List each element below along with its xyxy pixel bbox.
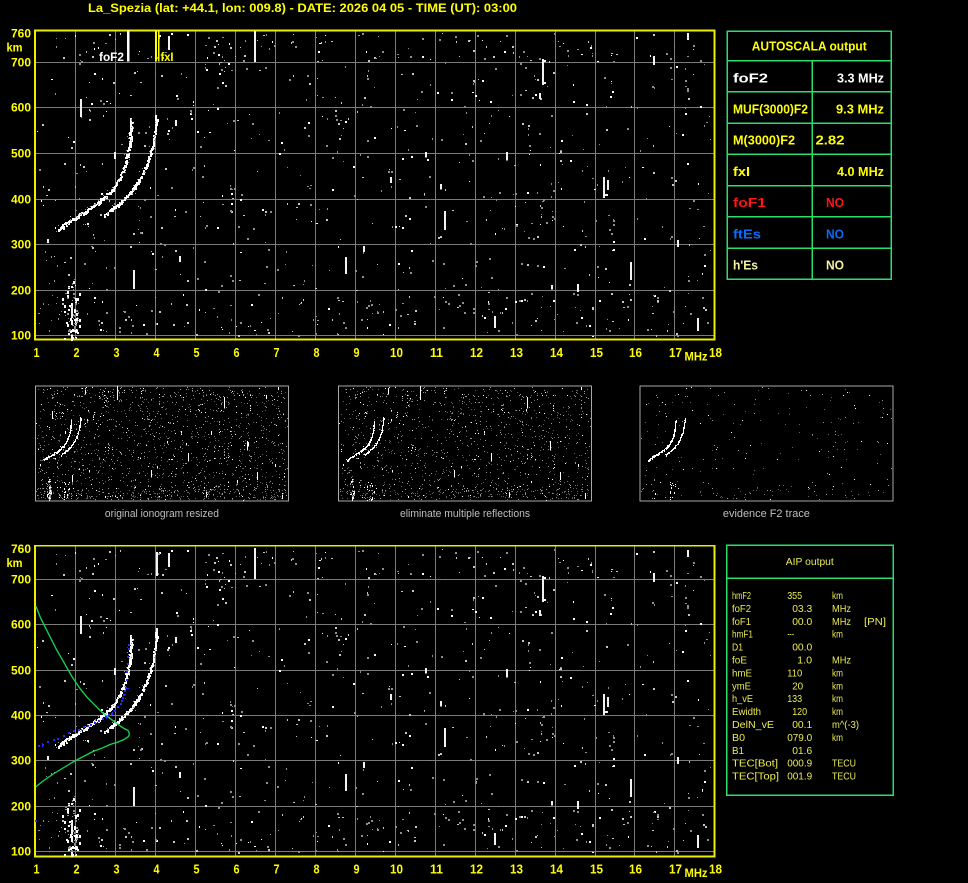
svg-text:TECU: TECU (832, 758, 856, 770)
svg-text:13: 13 (510, 345, 523, 360)
svg-text:original ionogram resized: original ionogram resized (105, 508, 219, 520)
svg-text:TEC[Bot]: TEC[Bot] (732, 758, 778, 770)
svg-text:4: 4 (154, 862, 161, 877)
svg-text:12: 12 (470, 345, 483, 360)
svg-text:100: 100 (11, 329, 31, 343)
svg-text:8: 8 (314, 345, 320, 360)
svg-text:km: km (832, 667, 843, 679)
svg-text:700: 700 (11, 56, 31, 70)
svg-text:foF1: foF1 (733, 195, 766, 210)
svg-text:5: 5 (194, 345, 200, 360)
svg-text:6: 6 (234, 862, 240, 877)
svg-text:km: km (832, 706, 843, 718)
svg-text:15: 15 (590, 862, 603, 877)
svg-text:MUF(3000)F2: MUF(3000)F2 (733, 102, 808, 117)
svg-text:14: 14 (550, 862, 564, 877)
svg-text:foF2: foF2 (732, 603, 751, 615)
svg-text:TEC[Top]: TEC[Top] (732, 771, 779, 783)
svg-text:400: 400 (11, 709, 31, 723)
svg-text:h'Es: h'Es (733, 258, 758, 273)
svg-text:100: 100 (11, 845, 31, 859)
svg-text:18: 18 (709, 862, 722, 877)
svg-text:MHz: MHz (832, 655, 851, 667)
svg-text:D1: D1 (732, 642, 743, 654)
svg-text:km: km (832, 693, 843, 705)
svg-text:700: 700 (11, 573, 31, 587)
svg-text:600: 600 (11, 101, 31, 115)
svg-text:3: 3 (114, 345, 120, 360)
svg-text:km: km (7, 41, 23, 55)
svg-text:6: 6 (234, 345, 240, 360)
svg-text:000.9: 000.9 (787, 758, 812, 770)
svg-text:hmF2: hmF2 (732, 590, 751, 602)
svg-text:MHz: MHz (685, 350, 708, 364)
svg-text:00.1: 00.1 (792, 719, 812, 731)
svg-text:B0: B0 (732, 732, 745, 744)
svg-text:B1: B1 (732, 745, 744, 757)
svg-text:NO: NO (826, 226, 844, 241)
svg-text:km: km (832, 590, 843, 602)
svg-text:8: 8 (314, 862, 320, 877)
svg-text:9: 9 (354, 862, 360, 877)
svg-text:foE: foE (732, 655, 747, 667)
svg-text:1: 1 (34, 345, 40, 360)
svg-text:20: 20 (792, 680, 803, 692)
svg-text:NO: NO (826, 258, 844, 273)
svg-text:600: 600 (11, 618, 31, 632)
svg-text:079.0: 079.0 (787, 732, 812, 744)
svg-text:9: 9 (354, 345, 360, 360)
svg-text:foF2: foF2 (733, 70, 768, 85)
svg-text:11: 11 (430, 862, 443, 877)
svg-text:300: 300 (11, 754, 31, 768)
svg-text:15: 15 (590, 345, 603, 360)
svg-text:h_vE: h_vE (732, 693, 753, 705)
svg-text:18: 18 (709, 345, 722, 360)
svg-text:760: 760 (11, 27, 31, 41)
svg-text:110: 110 (787, 667, 802, 679)
svg-text:Ewidth: Ewidth (732, 706, 761, 718)
svg-text:500: 500 (11, 664, 31, 678)
svg-text:11: 11 (430, 345, 443, 360)
svg-text:14: 14 (550, 345, 564, 360)
svg-text:3: 3 (114, 862, 120, 877)
svg-text:13: 13 (510, 862, 523, 877)
svg-text:12: 12 (470, 862, 483, 877)
svg-text:120: 120 (792, 706, 807, 718)
svg-text:2: 2 (74, 345, 80, 360)
svg-text:evidence F2 trace: evidence F2 trace (723, 508, 810, 520)
svg-text:MHz: MHz (685, 866, 708, 880)
svg-text:17: 17 (669, 345, 682, 360)
svg-text:AIP output: AIP output (786, 556, 834, 568)
svg-text:300: 300 (11, 238, 31, 252)
svg-text:km: km (832, 629, 843, 641)
svg-text:200: 200 (11, 284, 31, 298)
svg-text:MHz: MHz (832, 603, 851, 615)
svg-text:10: 10 (390, 345, 403, 360)
svg-text:1: 1 (34, 862, 40, 877)
svg-text:2.82: 2.82 (816, 133, 845, 148)
svg-text:km: km (832, 732, 843, 744)
svg-text:133: 133 (787, 693, 802, 705)
svg-text:NO: NO (826, 195, 844, 210)
svg-text:10: 10 (390, 862, 403, 877)
svg-text:MHz: MHz (832, 616, 851, 628)
svg-text:foF1: foF1 (732, 616, 751, 628)
svg-text:TECU: TECU (832, 771, 856, 783)
svg-text:17: 17 (669, 862, 682, 877)
svg-text:760: 760 (11, 542, 31, 556)
svg-text:200: 200 (11, 800, 31, 814)
svg-text:500: 500 (11, 147, 31, 161)
svg-text:km: km (832, 680, 843, 692)
svg-text:ymE: ymE (732, 680, 751, 692)
svg-text:9.3 MHz: 9.3 MHz (836, 102, 884, 117)
svg-text:4: 4 (154, 345, 161, 360)
svg-text:7: 7 (274, 862, 280, 877)
svg-text:fxI: fxI (161, 50, 174, 64)
svg-text:AUTOSCALA output: AUTOSCALA output (752, 39, 868, 54)
svg-text:5: 5 (194, 862, 200, 877)
svg-text:400: 400 (11, 193, 31, 207)
svg-text:4.0 MHz: 4.0 MHz (837, 164, 884, 179)
svg-text:La_Spezia (lat: +44.1, lon: 00: La_Spezia (lat: +44.1, lon: 009.8) - DAT… (88, 1, 517, 15)
svg-text:ftEs: ftEs (733, 226, 761, 241)
svg-text:03.3: 03.3 (792, 603, 812, 615)
svg-text:M(3000)F2: M(3000)F2 (733, 133, 795, 148)
svg-text:01.6: 01.6 (792, 745, 812, 757)
svg-text:km: km (7, 556, 23, 570)
svg-text:001.9: 001.9 (787, 771, 812, 783)
svg-text:16: 16 (629, 345, 642, 360)
svg-text:16: 16 (629, 862, 642, 877)
svg-text:---: --- (787, 629, 794, 641)
svg-text:foF2: foF2 (99, 50, 124, 64)
svg-text:hmE: hmE (732, 667, 752, 679)
svg-text:[PN]: [PN] (864, 616, 886, 628)
svg-text:3.3 MHz: 3.3 MHz (837, 70, 884, 85)
svg-text:eliminate multiple reflections: eliminate multiple reflections (400, 508, 530, 520)
svg-text:2: 2 (74, 862, 80, 877)
svg-text:00.0: 00.0 (792, 642, 812, 654)
svg-text:355: 355 (787, 590, 802, 602)
svg-text:fxI: fxI (733, 164, 750, 179)
svg-text:7: 7 (274, 345, 280, 360)
svg-text:1.0: 1.0 (797, 655, 812, 667)
svg-text:DelN_vE: DelN_vE (732, 719, 774, 731)
svg-text:hmF1: hmF1 (732, 629, 753, 641)
svg-text:00.0: 00.0 (792, 616, 812, 628)
svg-text:m^(-3): m^(-3) (832, 719, 859, 731)
